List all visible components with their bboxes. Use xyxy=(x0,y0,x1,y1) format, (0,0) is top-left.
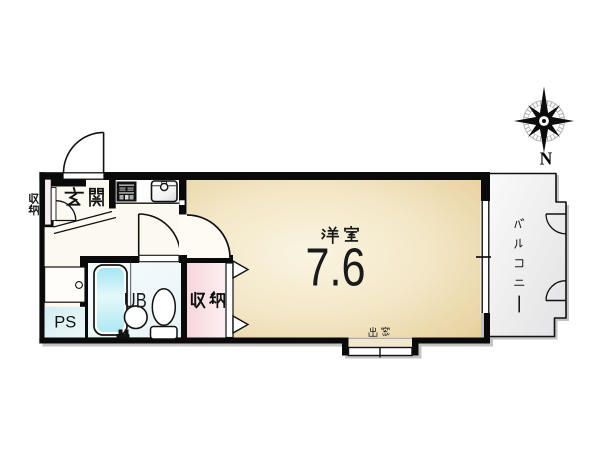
svg-text:PS: PS xyxy=(54,314,76,332)
svg-text:UB: UB xyxy=(124,289,147,312)
svg-text:7.6: 7.6 xyxy=(306,238,366,298)
svg-text:N: N xyxy=(540,149,553,169)
